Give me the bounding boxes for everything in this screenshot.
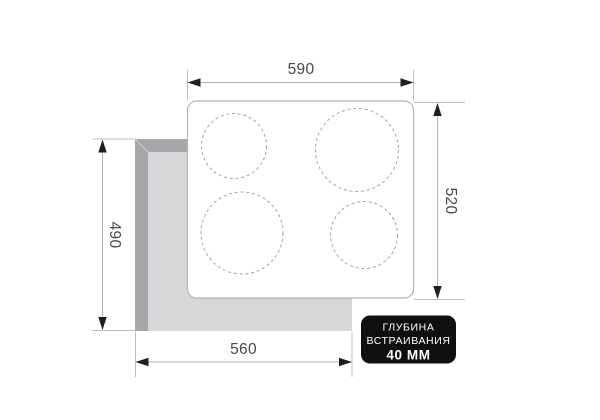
cooktop-body: [188, 101, 414, 298]
dimension-label-590: 590: [288, 61, 315, 78]
badge-line3: 40 ММ: [386, 348, 430, 363]
install-depth-badge: ГЛУБИНА ВСТРАИВАНИЯ 40 ММ: [361, 316, 456, 364]
arrowhead-up-icon: [433, 103, 441, 116]
dimension-label-490: 490: [106, 222, 123, 249]
arrowhead-right-icon: [401, 78, 414, 86]
arrowhead-up-icon: [98, 140, 106, 153]
arrowhead-left-icon: [136, 358, 149, 366]
dimension-label-560: 560: [230, 341, 257, 358]
diagram-svg: 590 520 490 560: [0, 0, 600, 420]
badge-line2: ВСТРАИВАНИЯ: [366, 335, 450, 347]
dimension-label-520: 520: [442, 188, 459, 215]
badge-line1: ГЛУБИНА: [383, 322, 435, 334]
dimension-top-width: 590: [188, 61, 414, 101]
arrowhead-left-icon: [188, 78, 201, 86]
dimension-left-cutout-depth: 490: [92, 139, 135, 331]
hob-dimensions-diagram: 590 520 490 560: [0, 0, 600, 420]
arrowhead-right-icon: [339, 358, 352, 366]
cooktop-panel: [188, 101, 414, 298]
dimension-right-depth: 520: [414, 103, 465, 300]
dimension-bottom-cutout-width: 560: [136, 332, 353, 378]
arrowhead-down-icon: [98, 317, 106, 330]
arrowhead-down-icon: [433, 286, 441, 299]
